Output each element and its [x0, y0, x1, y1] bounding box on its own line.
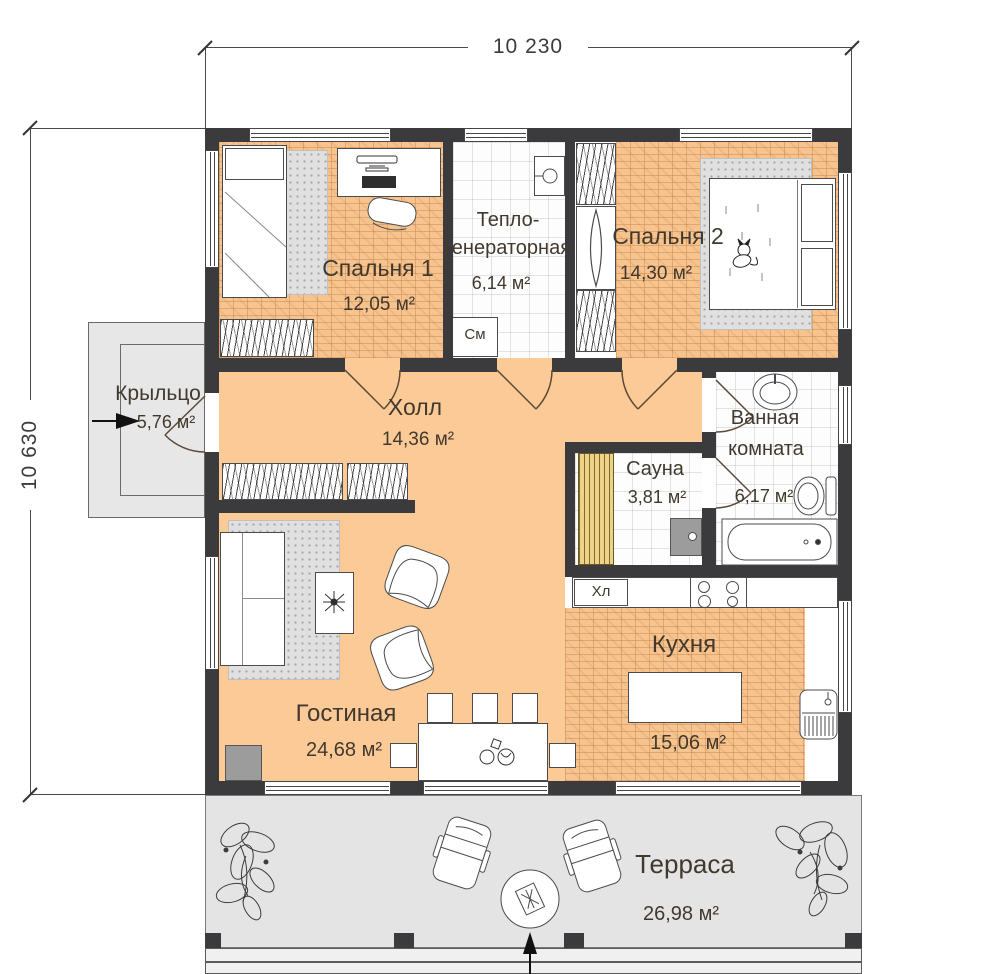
hall-name-label: Холл [355, 395, 475, 420]
sink-icon [753, 374, 797, 410]
floor-plan: 10 230 10 630 [0, 0, 992, 974]
plant-icon [772, 818, 852, 919]
tableware-icon [480, 739, 514, 765]
terrace-name-label: Терраса [605, 850, 765, 879]
lounge-chair-icon [426, 813, 498, 892]
bedroom1-name-label: Спальня 1 [298, 256, 458, 281]
heatroom-name-label: Тепло- [448, 209, 568, 231]
kitchen-sink-icon [800, 690, 837, 739]
kitchen-name-label: Кухня [604, 632, 764, 658]
kitchen-area-label: 15,06 м² [628, 732, 748, 754]
heatroom-name-label2: генераторная [428, 237, 588, 259]
heatroom-area-label: 6,14 м² [441, 274, 561, 294]
bathroom-name-label2: комната [706, 438, 826, 460]
bathtub-icon [722, 519, 837, 565]
bathroom-area-label: 6,17 м² [704, 487, 824, 507]
plant-icon [214, 818, 278, 922]
living-area-label: 24,68 м² [284, 739, 404, 761]
hall-area-label: 14,36 м² [358, 430, 478, 451]
terrace-entry-arrow-icon [523, 932, 537, 974]
bedroom2-name-label: Спальня 2 [588, 224, 748, 249]
desk-chair [365, 196, 417, 233]
plan-annotations [0, 0, 992, 974]
sauna-area-label: 3,81 м² [597, 488, 717, 508]
boiler-detail-icon [535, 169, 557, 183]
terrace-table [501, 870, 559, 928]
living-name-label: Гостиная [266, 701, 426, 727]
monitor-icon [357, 156, 397, 171]
washer-label: См [455, 327, 495, 344]
terrace-area-label: 26,98 м² [621, 903, 741, 925]
armchair-icon [367, 622, 437, 693]
fridge-label: Хл [576, 584, 626, 601]
bedroom2-area-label: 14,30 м² [596, 264, 716, 285]
porch-name-label: Крыльцо [98, 382, 218, 405]
porch-area-label: 5,76 м² [106, 413, 226, 433]
bathroom-name-label: Ванная [705, 407, 825, 429]
plant-sprig-icon [323, 591, 345, 613]
armchair-icon [381, 542, 452, 612]
sauna-name-label: Сауна [595, 458, 715, 480]
bedroom1-area-label: 12,05 м² [319, 295, 439, 316]
